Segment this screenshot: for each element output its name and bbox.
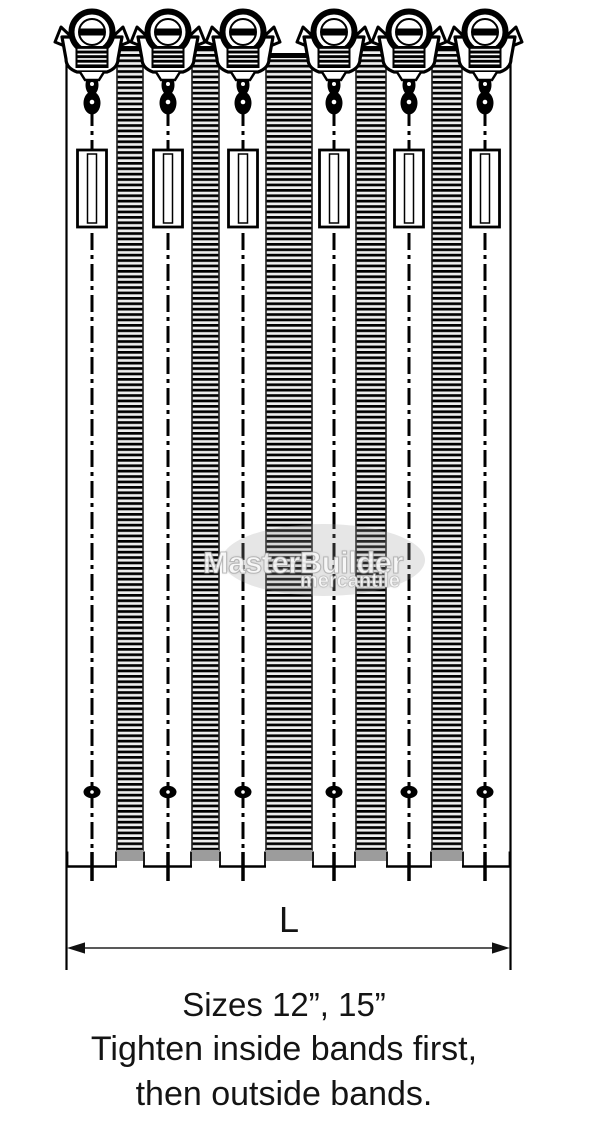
band [265, 53, 313, 861]
lug [471, 150, 500, 227]
dimension-label: L [279, 899, 299, 940]
band [431, 46, 463, 861]
length-dimension: L [67, 899, 510, 954]
eye-nut-icon [401, 786, 418, 798]
caption-note-line1: Tighten inside bands first, [0, 1027, 568, 1072]
lug [78, 150, 107, 227]
eye-nut-icon [84, 786, 101, 798]
caption-sizes: Sizes 12”, 15” [0, 983, 568, 1027]
band-shadow [266, 850, 312, 861]
band-shadow [117, 850, 143, 861]
dimension-arrow-right-icon [492, 942, 510, 953]
caption-note-line2: then outside bands. [0, 1072, 568, 1117]
eye-nut-icon [477, 786, 494, 798]
eye-nut-icon [326, 786, 343, 798]
eye-nut-icon [160, 786, 177, 798]
band-shadow [356, 850, 386, 861]
dimension-arrow-left-icon [67, 942, 85, 953]
eye-nut-icon [235, 786, 252, 798]
band-shadow [432, 850, 462, 861]
caption: Sizes 12”, 15” Tighten inside bands firs… [0, 983, 568, 1117]
lug [320, 150, 349, 227]
band [355, 46, 387, 861]
lug [229, 150, 258, 227]
pipe-clamp-diagram: L [0, 0, 600, 975]
band-shadow [192, 850, 219, 861]
band [191, 46, 220, 861]
lug [395, 150, 424, 227]
band [116, 46, 144, 861]
figure-canvas: L MasterBuilder mercantile Sizes 12”, 15… [0, 0, 600, 1135]
lug [154, 150, 183, 227]
